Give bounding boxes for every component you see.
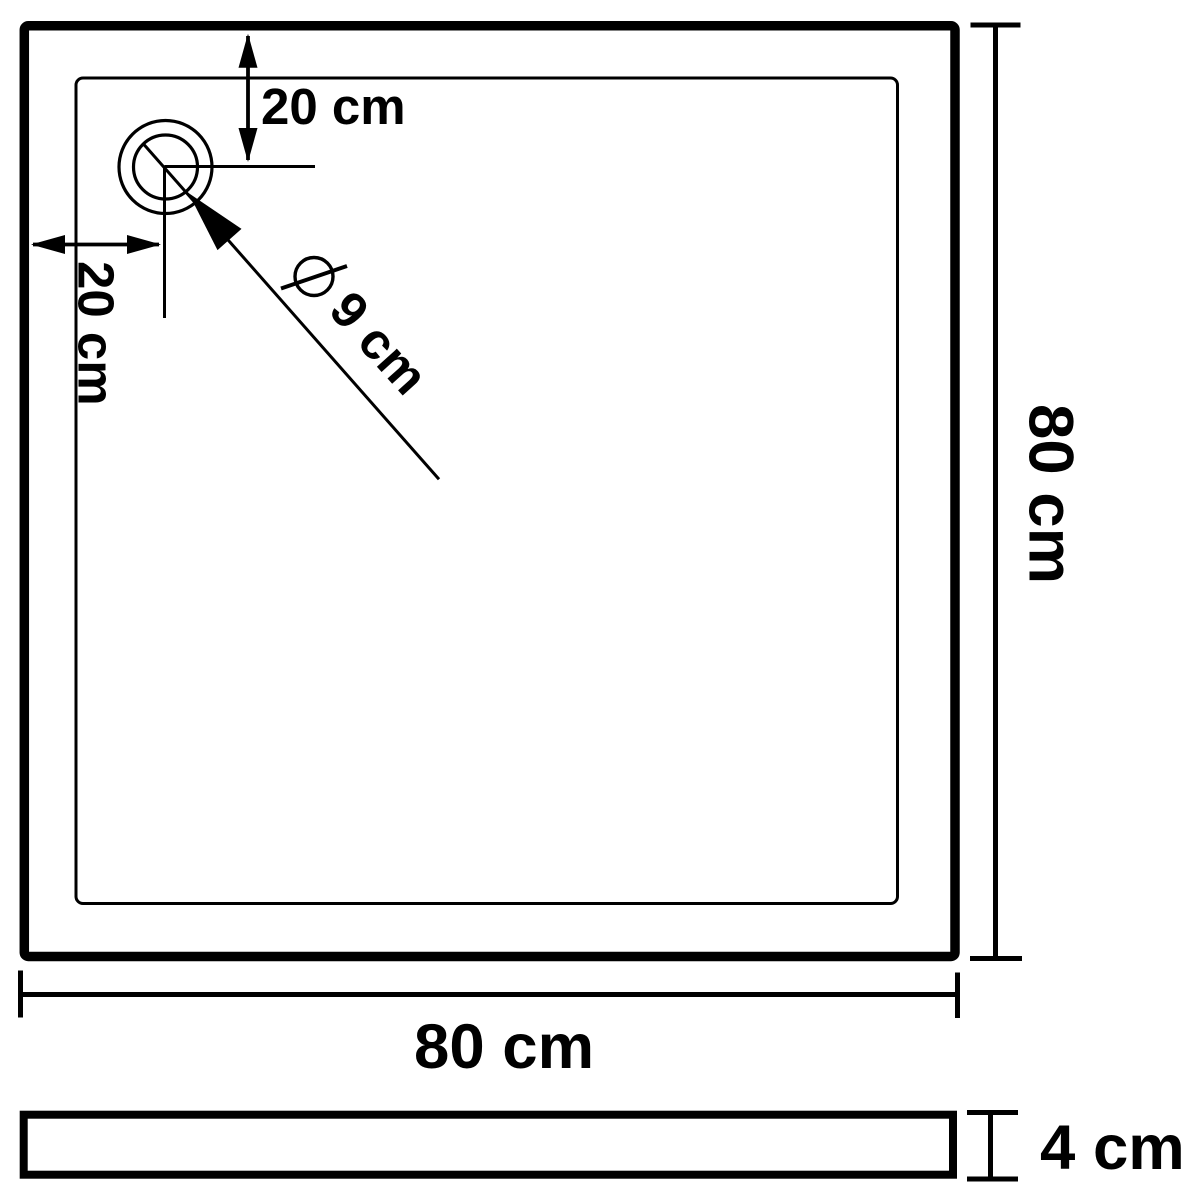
- svg-text:20 cm: 20 cm: [68, 261, 125, 406]
- svg-text:20 cm: 20 cm: [261, 78, 406, 135]
- svg-text:4 cm: 4 cm: [1040, 1113, 1185, 1183]
- svg-text:80 cm: 80 cm: [1016, 404, 1086, 584]
- svg-text:80 cm: 80 cm: [414, 1012, 594, 1082]
